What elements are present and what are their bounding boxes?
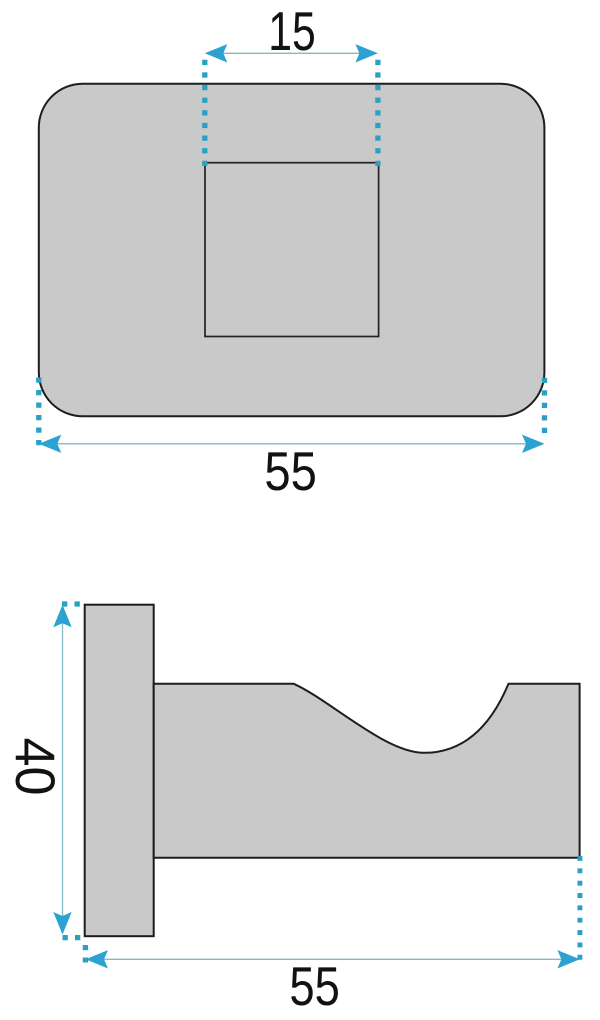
svg-text:55: 55 bbox=[264, 441, 317, 502]
svg-text:15: 15 bbox=[268, 1, 316, 62]
svg-text:40: 40 bbox=[4, 738, 67, 796]
svg-text:55: 55 bbox=[289, 956, 340, 1017]
